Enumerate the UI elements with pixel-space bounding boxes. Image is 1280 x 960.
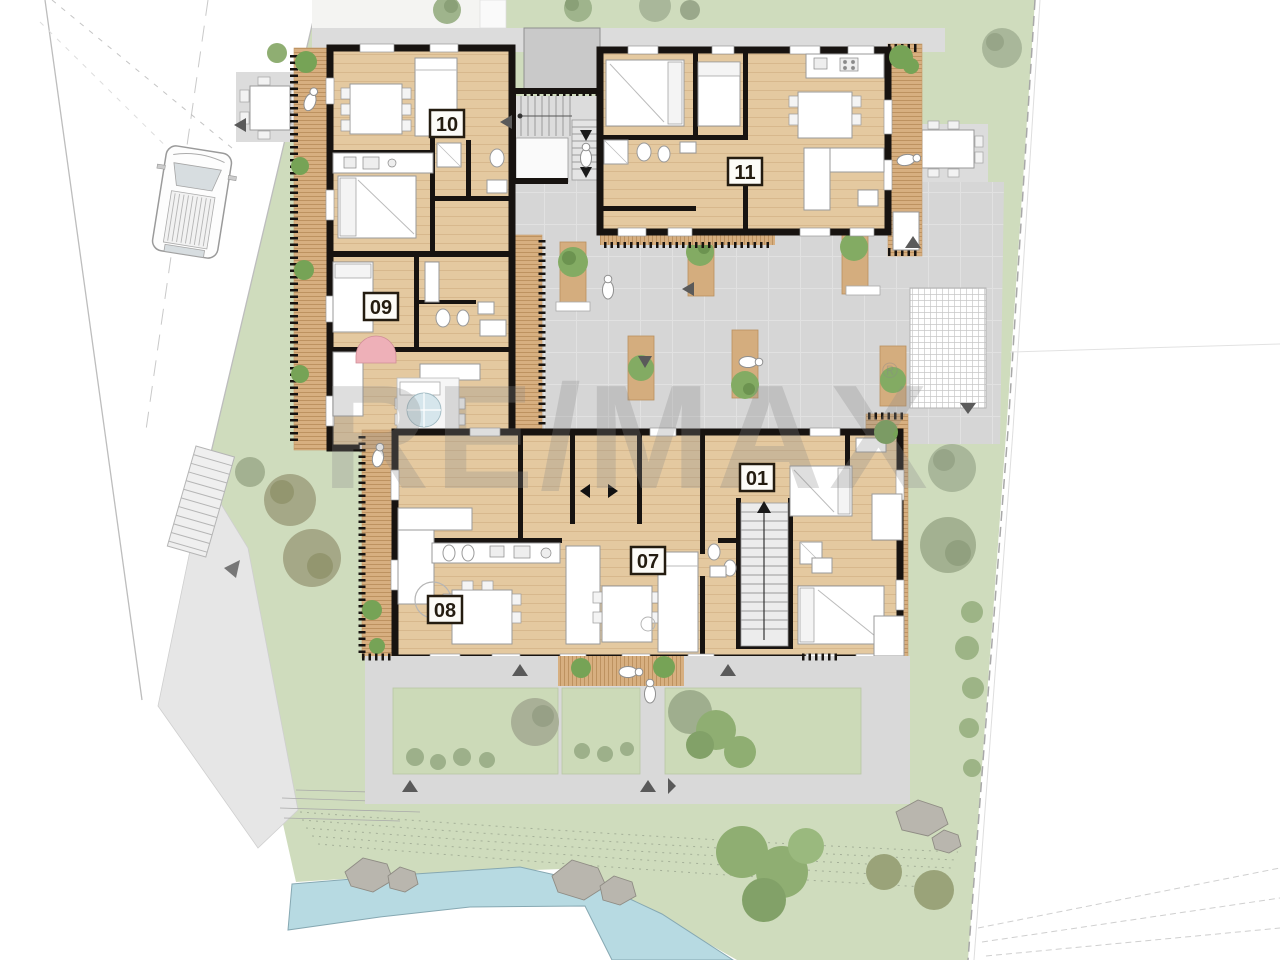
person-figure (603, 275, 614, 299)
unit-label-10: 10 (430, 110, 464, 137)
roof-volume (524, 28, 600, 92)
building-north-east-wing (600, 44, 922, 256)
unit-label-07: 07 (631, 547, 665, 574)
unit-label-08: 08 (428, 596, 462, 623)
tree (235, 457, 265, 487)
car (144, 143, 240, 260)
tree (264, 474, 316, 526)
site-plan-svg: RE/MAX ® 10 11 09 01 07 08 (0, 0, 1280, 960)
tree (558, 247, 588, 277)
tree (267, 43, 287, 63)
unit-label-09-text: 09 (370, 297, 392, 319)
south-garden (362, 656, 910, 804)
person-figure (645, 679, 656, 703)
survey-lines-bottom-right (978, 868, 1280, 956)
unit-label-09: 09 (364, 293, 398, 320)
site-plan-page: RE/MAX ® 10 11 09 01 07 08 (0, 0, 1280, 960)
survey-line (1010, 344, 1280, 352)
person-figure (619, 667, 643, 678)
tree (840, 233, 868, 261)
interior-stair (741, 501, 788, 646)
unit-label-08-text: 08 (434, 600, 456, 622)
elevator-landing (516, 138, 568, 182)
person-figure (581, 143, 592, 167)
unit-label-07-text: 07 (637, 551, 659, 573)
watermark: RE/MAX ® (322, 355, 934, 520)
unit-label-01-text: 01 (746, 468, 768, 490)
watermark-registered-mark: ® (882, 358, 898, 383)
tree (511, 698, 559, 746)
tree (928, 444, 976, 492)
top-path-white2 (480, 0, 506, 28)
unit-label-11: 11 (728, 158, 762, 185)
garden-plot-2 (562, 688, 640, 774)
stair-core-north (510, 28, 600, 184)
tree (920, 517, 976, 573)
stair-start-dot (518, 114, 523, 119)
tree (283, 529, 341, 587)
watermark-text: RE/MAX (322, 355, 934, 520)
tree (982, 28, 1022, 68)
unit-label-10-text: 10 (436, 114, 458, 136)
unit-label-11-text: 11 (734, 162, 755, 184)
unit-label-01: 01 (740, 464, 774, 491)
